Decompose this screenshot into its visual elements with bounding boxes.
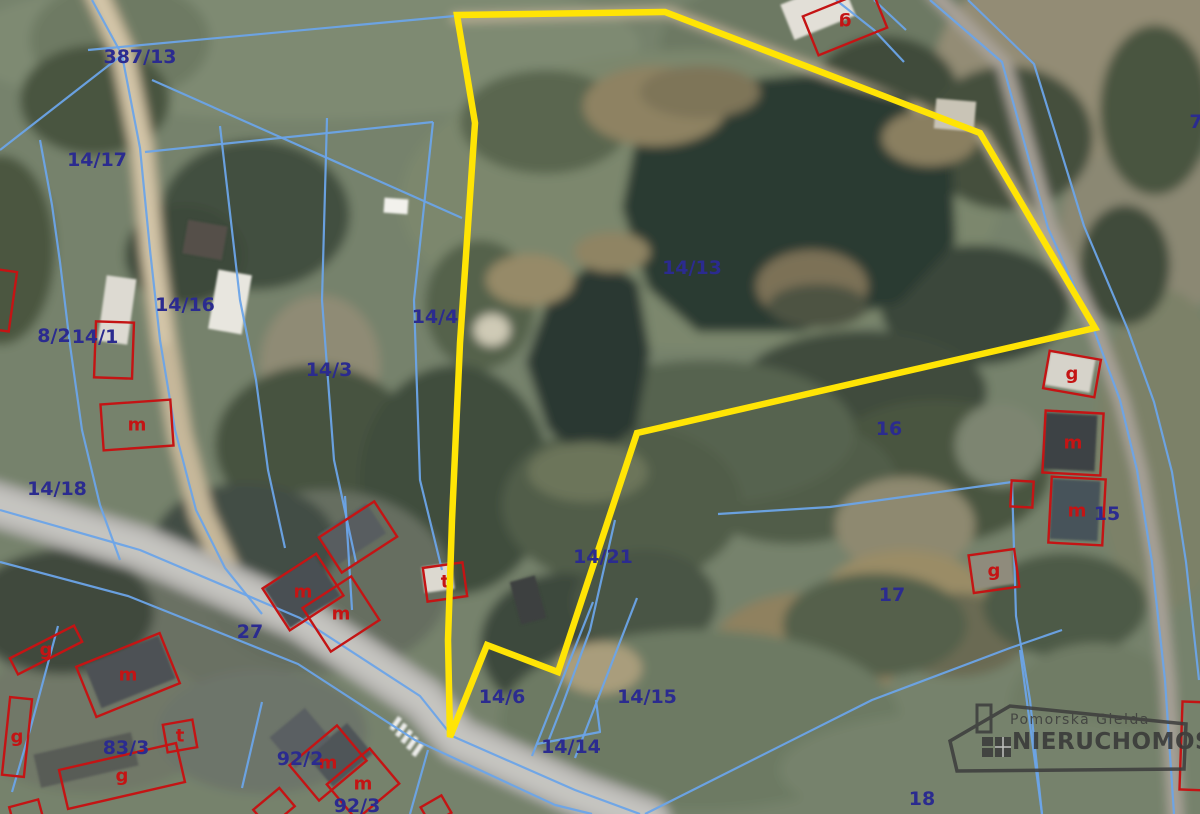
building-type-letter: m <box>119 665 138 686</box>
building-type-letter: m <box>1064 433 1083 454</box>
building-type-letter: g <box>839 12 852 33</box>
shore-patch <box>574 232 650 272</box>
parcel-label-14-21: 14/21 <box>573 546 633 568</box>
parcel-label-17: 17 <box>879 584 905 606</box>
building-type-letter: m <box>354 774 373 795</box>
parcel-label-8-2: 8/2 <box>37 325 70 347</box>
building-type-letter: g <box>116 766 129 787</box>
parcel-label-14-3: 14/3 <box>306 359 353 381</box>
building-type-letter: g <box>1066 364 1079 385</box>
parcel-label-14-17: 14/17 <box>67 149 127 171</box>
parcel-label-14-6: 14/6 <box>479 686 526 708</box>
parcel-label-7: 7 <box>1189 111 1200 133</box>
parcel-label-92-3: 92/3 <box>334 795 381 814</box>
building-type-letter: m <box>294 582 313 603</box>
parcel-label-14-1: 14/1 <box>72 326 119 348</box>
shore-patch <box>768 284 868 328</box>
building-type-letter: g <box>11 727 24 748</box>
parcel-label-15: 15 <box>1094 503 1120 525</box>
parcel-label-14-14: 14/14 <box>541 736 601 758</box>
building-type-letter: g <box>40 640 53 661</box>
parcel-label-14-4: 14/4 <box>412 306 459 328</box>
building-type-letter: m <box>332 604 351 625</box>
parcel-label-83-3: 83/3 <box>103 737 150 759</box>
shore-patch <box>640 66 760 118</box>
map-canvas: mmmtggmmgggmtgmm387/1314/1714/168/214/11… <box>0 0 1200 814</box>
rooftop <box>182 220 227 260</box>
parcel-label-387-13: 387/13 <box>103 46 176 68</box>
parcel-label-27: 27 <box>237 621 263 643</box>
building-type-letter: m <box>1068 501 1087 522</box>
parcel-label-14-15: 14/15 <box>617 686 677 708</box>
shore-patch <box>486 254 574 306</box>
parcel-label-14-13: 14/13 <box>662 257 722 279</box>
cadastral-aerial-map: mmmtggmmgggmtgmm387/1314/1714/168/214/11… <box>0 0 1200 814</box>
building-type-letter: g <box>988 561 1001 582</box>
terrain-patch <box>955 403 1045 487</box>
parcel-label-14-18: 14/18 <box>27 478 87 500</box>
shore-patch <box>474 314 510 346</box>
building-type-letter: m <box>128 415 147 436</box>
parcel-label-18: 18 <box>909 788 935 810</box>
parcel-label-92-2: 92/2 <box>277 748 324 770</box>
parcel-label-16: 16 <box>876 418 902 440</box>
parcel-label-14-16: 14/16 <box>155 294 215 316</box>
rooftop <box>384 198 409 215</box>
